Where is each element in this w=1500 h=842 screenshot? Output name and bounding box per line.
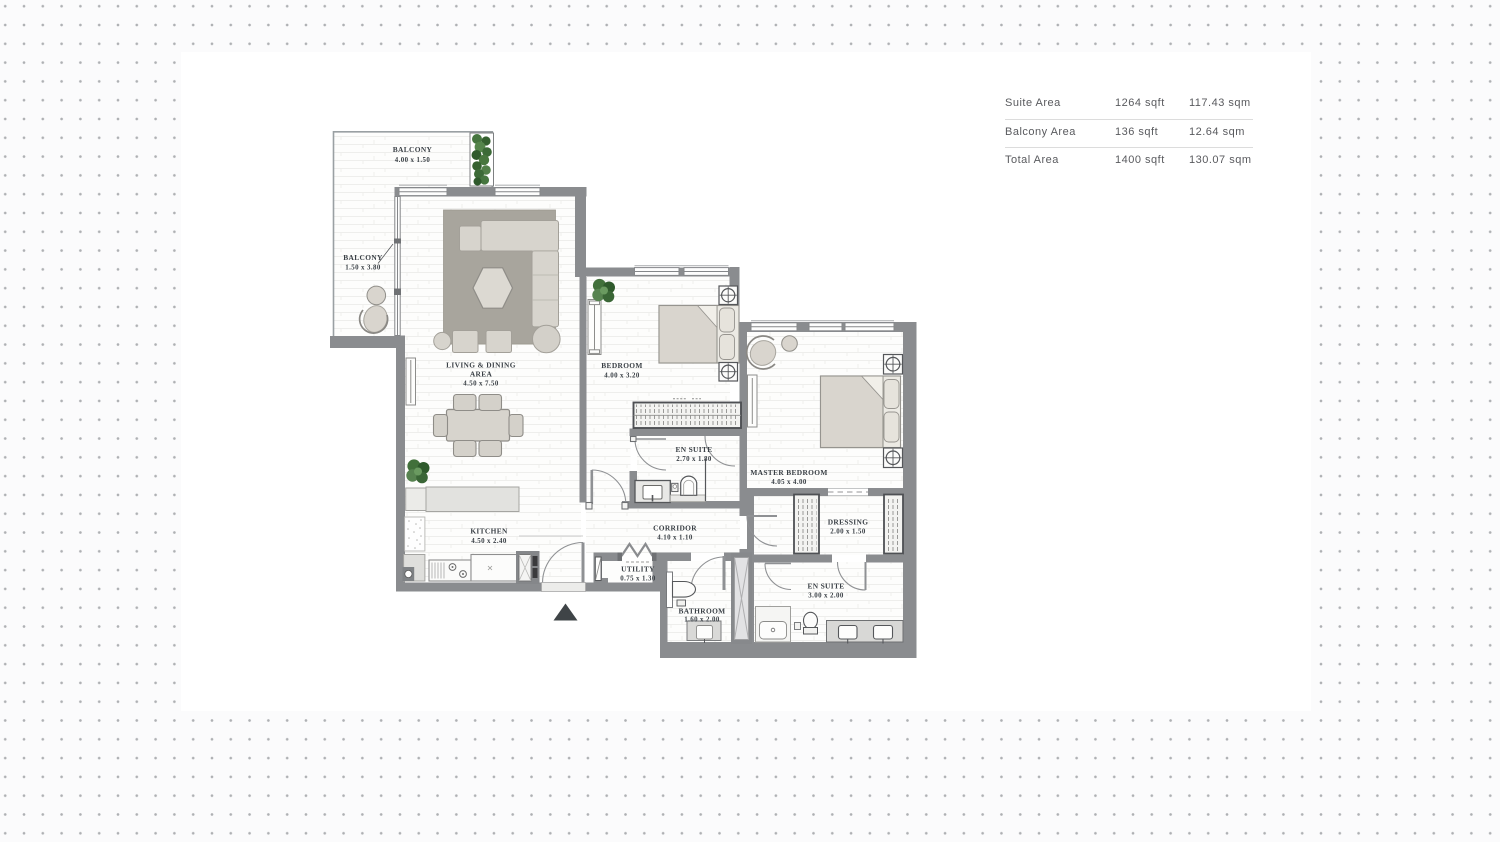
svg-text:4.05 x 4.00: 4.05 x 4.00 bbox=[771, 479, 807, 486]
svg-text:BALCONY: BALCONY bbox=[343, 253, 383, 262]
svg-text:DRESSING: DRESSING bbox=[828, 518, 869, 527]
svg-text:UTILITY: UTILITY bbox=[621, 565, 655, 574]
svg-text:4.50 x 2.40: 4.50 x 2.40 bbox=[471, 538, 507, 545]
svg-text:EN SUITE: EN SUITE bbox=[807, 582, 844, 591]
svg-text:KITCHEN: KITCHEN bbox=[470, 527, 508, 536]
svg-text:2.00 x 1.50: 2.00 x 1.50 bbox=[830, 529, 866, 536]
svg-text:CORRIDOR: CORRIDOR bbox=[653, 524, 697, 533]
svg-text:0.75 x 1.30: 0.75 x 1.30 bbox=[620, 576, 656, 583]
svg-text:BALCONY: BALCONY bbox=[393, 145, 433, 154]
svg-text:AREA: AREA bbox=[470, 370, 493, 379]
svg-text:1.60 x 2.00: 1.60 x 2.00 bbox=[684, 617, 720, 624]
svg-text:LIVING & DINING: LIVING & DINING bbox=[446, 361, 516, 370]
svg-text:1.50 x 3.80: 1.50 x 3.80 bbox=[345, 265, 381, 272]
svg-text:2.70 x 1.80: 2.70 x 1.80 bbox=[676, 456, 712, 463]
svg-text:EN SUITE: EN SUITE bbox=[675, 445, 712, 454]
svg-text:4.10 x 1.10: 4.10 x 1.10 bbox=[657, 535, 693, 542]
svg-text:4.00 x 3.20: 4.00 x 3.20 bbox=[604, 373, 640, 380]
svg-text:3.00 x 2.00: 3.00 x 2.00 bbox=[808, 593, 844, 600]
svg-text:MASTER BEDROOM: MASTER BEDROOM bbox=[750, 468, 827, 477]
svg-text:4.00 x 1.50: 4.00 x 1.50 bbox=[395, 157, 431, 164]
svg-text:4.50 x 7.50: 4.50 x 7.50 bbox=[463, 381, 499, 388]
svg-text:BEDROOM: BEDROOM bbox=[601, 361, 642, 370]
svg-text:BATHROOM: BATHROOM bbox=[678, 607, 725, 616]
